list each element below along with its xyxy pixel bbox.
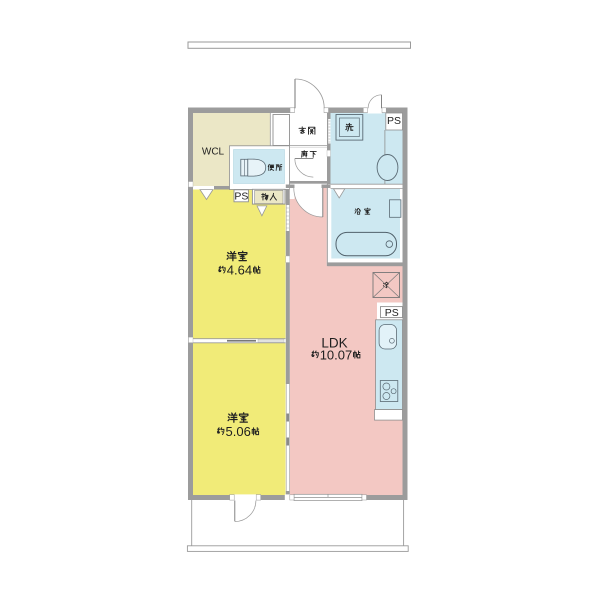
svg-text:PS: PS bbox=[234, 191, 248, 203]
svg-text:WCL: WCL bbox=[202, 146, 225, 157]
svg-text:PS: PS bbox=[387, 115, 401, 127]
svg-text:4.64: 4.64 bbox=[227, 262, 252, 277]
svg-text:PS: PS bbox=[385, 307, 399, 319]
svg-text:10.07: 10.07 bbox=[320, 347, 353, 362]
svg-text:5.06: 5.06 bbox=[226, 424, 251, 439]
